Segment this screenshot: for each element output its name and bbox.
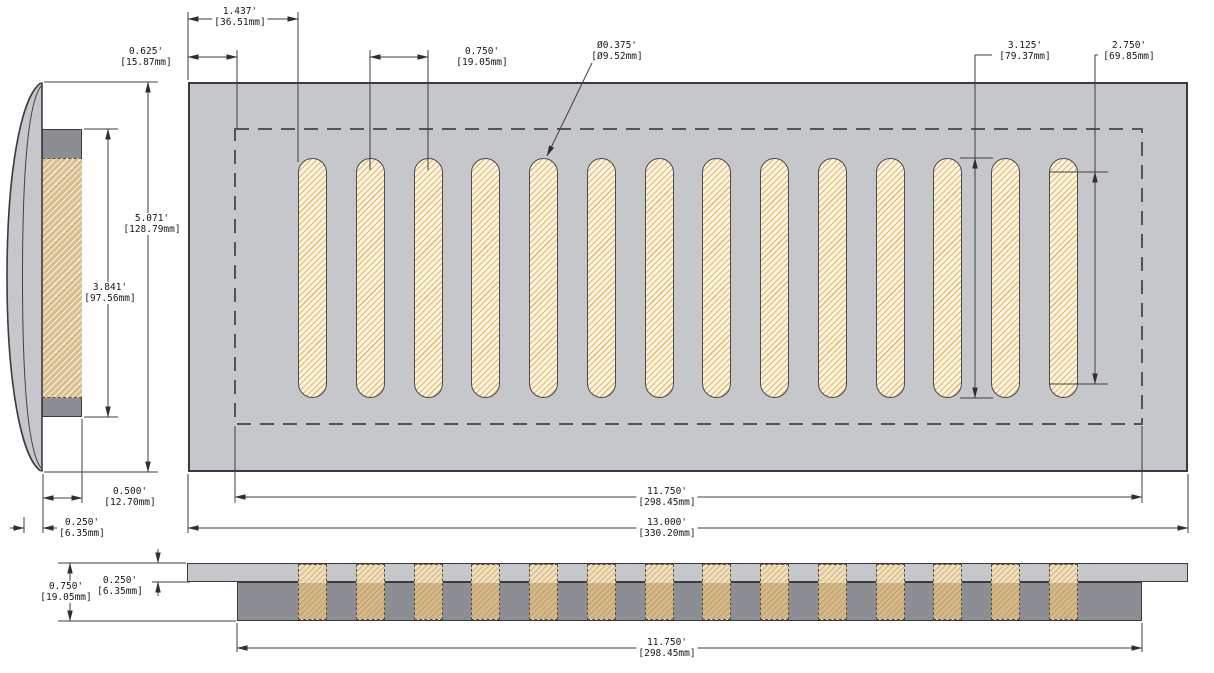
dim-overall-width: 13.000'[330.20mm] (636, 517, 697, 539)
dim-slot-cc: 2.750'[69.85mm] (1101, 40, 1156, 62)
dim-slot-pitch: 0.750'[19.05mm] (454, 46, 509, 68)
dim-margin-lines (188, 50, 237, 129)
dim-slot-length-lines (960, 55, 993, 398)
dim-opening-width: 11.750'[298.45mm] (636, 486, 697, 508)
dim-slot-length: 3.125'[79.37mm] (997, 40, 1052, 62)
dim-face-thickness-lines (10, 517, 57, 533)
duct-opening-dashed-outline (235, 129, 1142, 424)
dim-face-thickness: 0.250'[6.35mm] (57, 517, 107, 539)
dim-margin: 0.625'[15.87mm] (118, 46, 173, 68)
dim-total-thickness: 0.750'[19.05mm] (38, 581, 93, 603)
dim-overall-height-lines (44, 82, 158, 472)
dim-slot-cc-lines (1050, 55, 1108, 384)
dim-slot-pitch-lines (370, 50, 428, 170)
leader-slot-diameter (547, 63, 592, 156)
dim-plate-thickness: 0.250'[6.35mm] (95, 575, 145, 597)
dim-plate-thickness-lines (152, 549, 190, 596)
dim-overall-height: 5.071'[128.79mm] (121, 213, 182, 235)
side-view-curved-faceplate (7, 82, 42, 472)
dim-drop-depth-lines (43, 419, 82, 533)
dim-slot-diameter: Ø0.375'[Ø9.52mm] (589, 40, 644, 62)
technical-drawing-page: 1.437'[36.51mm] 0.625'[15.87mm] 0.750'[1… (0, 0, 1214, 673)
dimension-linework (0, 0, 1214, 673)
dim-duct-width: 11.750'[298.45mm] (636, 637, 697, 659)
dim-slot-offset: 1.437'[36.51mm] (212, 6, 267, 28)
dim-drop-depth: 0.500'[12.70mm] (102, 486, 157, 508)
dim-slot-offset-lines (188, 12, 298, 162)
dim-opening-height-lines (84, 129, 118, 417)
dim-opening-height: 3.841'[97.56mm] (82, 282, 137, 304)
